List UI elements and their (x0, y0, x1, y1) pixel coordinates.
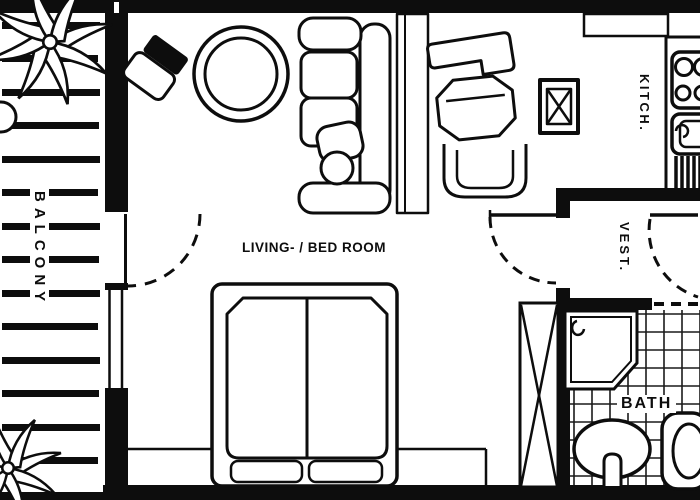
tub-chair (444, 144, 526, 197)
balcony-deck-stripes (2, 22, 100, 464)
sofa-pillow-round (321, 152, 353, 184)
round-table (194, 27, 288, 121)
pillow (231, 461, 302, 482)
plant-pot (0, 102, 16, 132)
lounge-chair (121, 32, 190, 102)
balcony-opening (110, 214, 201, 388)
kitchen-stove (672, 52, 700, 108)
writing-desk (427, 32, 515, 83)
floor-plan: BALCONY KITCH. VEST. BATH LIVING- / BED … (0, 0, 700, 500)
double-bed (212, 284, 397, 486)
balcony-door-swing-arc (128, 214, 200, 286)
palm-plant-icon (0, 0, 112, 104)
vest-bath-wall (568, 298, 652, 310)
dish-drainer (676, 156, 700, 190)
balcony-partition-wall-lower (105, 395, 128, 487)
living-room-label: LIVING- / BED ROOM (242, 241, 386, 255)
vest-door-swing-arc (490, 217, 556, 283)
kitchen-sink (672, 114, 700, 154)
exterior-wall-bottom (103, 485, 700, 500)
pillow (309, 461, 382, 482)
shower-tray (565, 311, 637, 389)
entry-door-swing-arc (649, 219, 698, 297)
armchair (435, 74, 517, 142)
vestibule-label: VEST. (618, 222, 631, 273)
toilet (662, 413, 700, 489)
side-table (540, 80, 578, 133)
kitchen-cabinet (584, 14, 668, 36)
sofa (299, 18, 390, 213)
vestibule-doors (490, 210, 700, 304)
vest-wall-stub-top (556, 188, 570, 218)
bath-label: BATH (617, 395, 676, 413)
kitchen-vest-wall (556, 188, 700, 201)
kitchen-label: KITCH. (638, 74, 651, 132)
closet (520, 303, 558, 487)
exterior-wall-top (0, 0, 700, 13)
bookshelf (397, 14, 428, 213)
balcony-partition-wall-upper (105, 13, 128, 212)
living-furniture (121, 14, 578, 213)
balcony-label: BALCONY (30, 186, 49, 312)
